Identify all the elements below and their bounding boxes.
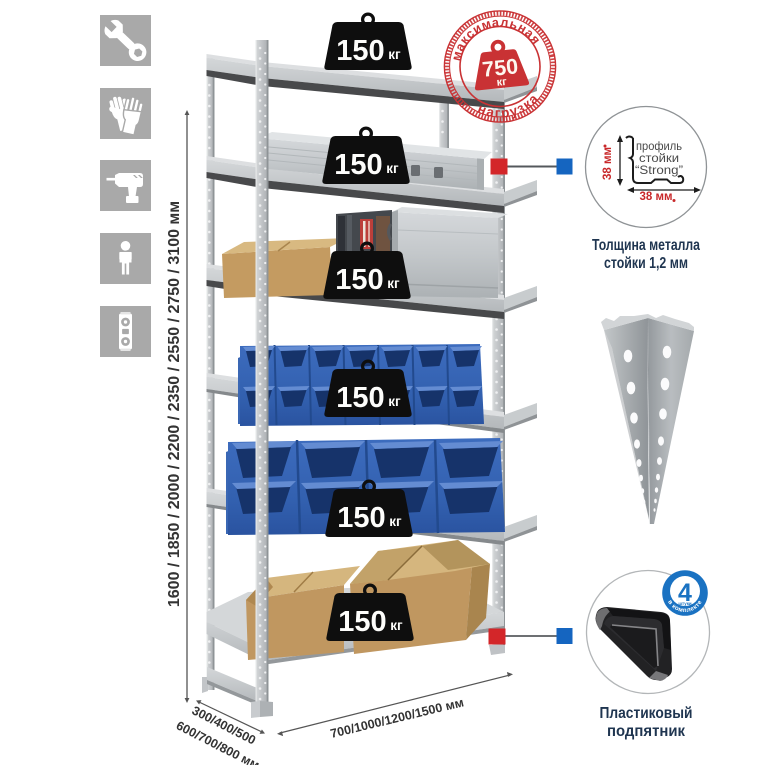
svg-text:подпятник: подпятник (607, 723, 685, 740)
svg-text:150: 150 (336, 35, 384, 67)
svg-text:150: 150 (334, 149, 382, 181)
svg-text:кг: кг (390, 618, 403, 633)
svg-text:кг: кг (386, 161, 399, 176)
svg-text:“Strong”: “Strong” (635, 163, 683, 177)
svg-text:38 мм: 38 мм (639, 191, 672, 203)
svg-text:Пластиковый: Пластиковый (600, 705, 693, 722)
svg-text:стойки 1,2 мм: стойки 1,2 мм (604, 255, 688, 272)
svg-text:кг: кг (496, 76, 508, 89)
svg-text:штуки: штуки (678, 601, 692, 606)
svg-text:150: 150 (335, 264, 383, 296)
svg-text:150: 150 (336, 382, 384, 414)
svg-text:150: 150 (338, 606, 386, 638)
svg-text:Толщина металла: Толщина металла (592, 237, 700, 254)
svg-text:кг: кг (388, 394, 401, 409)
svg-text:1600 / 1850 / 2000 / 2200 / 23: 1600 / 1850 / 2000 / 2200 / 2350 / 2550 … (166, 201, 183, 607)
svg-text:кг: кг (389, 514, 402, 529)
svg-text:кг: кг (388, 47, 401, 62)
svg-text:38 мм: 38 мм (602, 147, 614, 180)
svg-text:150: 150 (337, 502, 385, 534)
svg-text:кг: кг (387, 276, 400, 291)
